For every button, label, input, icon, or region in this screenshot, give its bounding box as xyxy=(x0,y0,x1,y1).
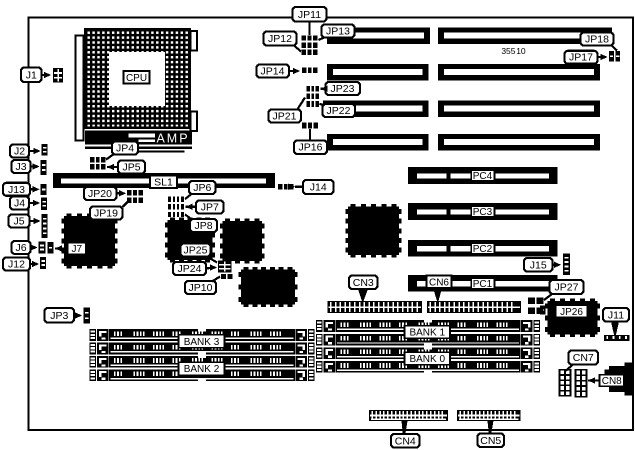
svg-text:J2: J2 xyxy=(14,146,25,158)
svg-text:JP19: JP19 xyxy=(94,207,118,219)
svg-text:AMP: AMP xyxy=(156,132,189,146)
svg-text:JP13: JP13 xyxy=(326,25,350,37)
svg-text:JP10: JP10 xyxy=(189,282,213,294)
svg-text:J14: J14 xyxy=(310,182,327,194)
svg-text:JP3: JP3 xyxy=(50,310,68,322)
svg-text:J12: J12 xyxy=(8,259,25,271)
svg-text:BANK 0: BANK 0 xyxy=(409,354,445,365)
svg-text:CN3: CN3 xyxy=(353,277,374,289)
svg-text:CN4: CN4 xyxy=(395,435,416,447)
svg-text:CN8: CN8 xyxy=(602,376,622,387)
svg-text:JP6: JP6 xyxy=(193,182,211,194)
svg-text:SL1: SL1 xyxy=(154,176,173,188)
svg-text:J11: J11 xyxy=(608,309,624,321)
svg-text:JP24: JP24 xyxy=(178,263,202,275)
svg-text:J15: J15 xyxy=(530,259,547,271)
svg-text:BANK 1: BANK 1 xyxy=(409,328,445,339)
svg-text:CPU: CPU xyxy=(126,73,147,84)
svg-text:JP25: JP25 xyxy=(184,244,208,256)
svg-text:PC4: PC4 xyxy=(473,171,493,182)
svg-text:JP12: JP12 xyxy=(268,33,292,45)
svg-text:J3: J3 xyxy=(15,161,26,173)
svg-text:JP8: JP8 xyxy=(194,220,212,232)
svg-text:CN7: CN7 xyxy=(573,352,594,364)
svg-text:JP18: JP18 xyxy=(585,33,609,45)
svg-text:JP4: JP4 xyxy=(116,143,134,155)
svg-text:J6: J6 xyxy=(15,242,26,254)
svg-text:J13: J13 xyxy=(8,184,25,196)
svg-text:PC1: PC1 xyxy=(473,279,493,290)
svg-text:JP16: JP16 xyxy=(299,142,323,154)
svg-text:J7: J7 xyxy=(71,244,82,255)
svg-text:BANK 3: BANK 3 xyxy=(184,337,220,348)
svg-text:JP7: JP7 xyxy=(201,202,219,214)
svg-text:JP26: JP26 xyxy=(560,307,583,318)
svg-text:PC3: PC3 xyxy=(473,207,493,218)
svg-text:355 10: 355 10 xyxy=(501,46,526,56)
svg-text:JP20: JP20 xyxy=(88,188,112,200)
svg-text:JP11: JP11 xyxy=(298,9,321,21)
svg-text:J1: J1 xyxy=(26,69,37,81)
svg-text:JP27: JP27 xyxy=(555,282,579,294)
svg-text:J4: J4 xyxy=(14,198,25,210)
svg-text:JP22: JP22 xyxy=(327,105,351,117)
svg-text:BANK 2: BANK 2 xyxy=(184,364,220,375)
svg-text:CN6: CN6 xyxy=(429,277,449,288)
svg-text:PC2: PC2 xyxy=(473,244,493,255)
svg-text:CN5: CN5 xyxy=(480,435,501,447)
svg-text:JP23: JP23 xyxy=(331,83,355,95)
svg-text:JP21: JP21 xyxy=(273,110,297,122)
svg-text:JP17: JP17 xyxy=(569,52,593,64)
svg-text:JP14: JP14 xyxy=(261,65,285,77)
svg-text:JP5: JP5 xyxy=(122,162,140,174)
svg-text:J5: J5 xyxy=(13,216,24,228)
